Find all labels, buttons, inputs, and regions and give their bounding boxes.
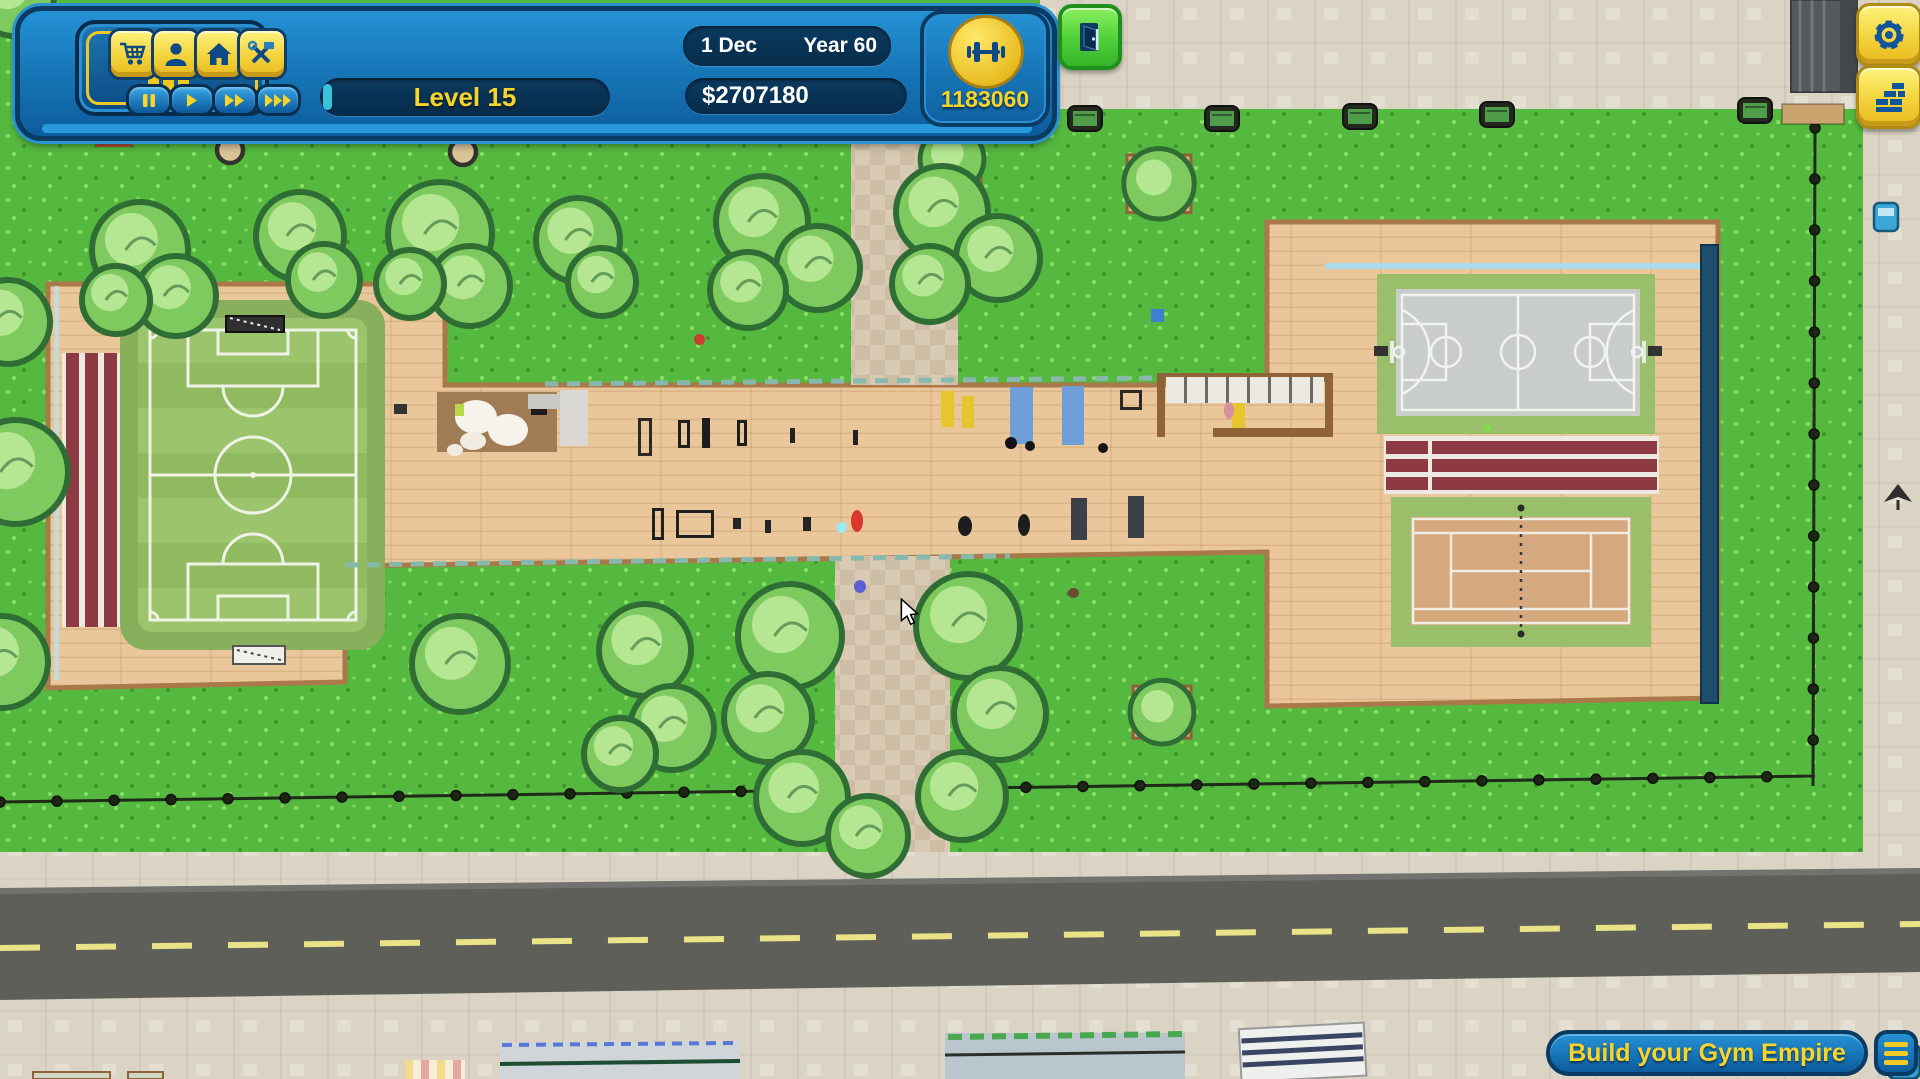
pause-button[interactable] (126, 84, 172, 116)
brick-wall-icon (1871, 81, 1907, 113)
tree (954, 668, 1046, 760)
running-track[interactable] (62, 353, 122, 627)
tennis-court[interactable] (1391, 497, 1651, 647)
stray-ball (1484, 425, 1491, 432)
tree (584, 718, 656, 790)
tree (828, 796, 908, 876)
tree (724, 674, 812, 762)
tree (916, 574, 1020, 678)
park-bench (1738, 98, 1772, 123)
gear-icon (1867, 13, 1911, 57)
shop-awning (405, 1060, 465, 1079)
date-year: Year 60 (803, 34, 877, 58)
star-icon (333, 22, 387, 74)
level-badge: Level 15 (320, 78, 610, 116)
date-display: 1 Dec Year 60 (683, 26, 891, 66)
park-bench (1343, 104, 1377, 129)
park-bench (1205, 106, 1239, 131)
gym-rating (333, 22, 608, 74)
round-planter (450, 139, 476, 165)
walls-button[interactable] (1856, 65, 1920, 129)
play-icon (186, 94, 198, 107)
build-button[interactable] (237, 28, 287, 80)
open-door-icon (1077, 21, 1103, 53)
tree (918, 752, 1006, 840)
home-icon (204, 40, 234, 68)
tree (412, 616, 508, 712)
boundary-wall (1701, 245, 1718, 703)
shop-roof-2 (945, 1033, 1185, 1079)
star-icon (549, 22, 603, 74)
tree (599, 604, 691, 696)
pause-icon (142, 94, 156, 107)
game-screen: Level 15 1 Dec Year 60 $2707180 1183060 … (0, 0, 1920, 1079)
fast-forward-button[interactable] (212, 84, 258, 116)
footer-title: Build your Gym Empire (1568, 1039, 1846, 1068)
soccer-field[interactable] (120, 300, 385, 664)
tree (568, 248, 636, 316)
courtyard-edge-line-top (1325, 263, 1705, 269)
person-icon (161, 40, 191, 68)
fastest-forward-icon (265, 94, 291, 107)
park-bench (1480, 102, 1514, 127)
shopping-cart-icon (118, 40, 148, 68)
basketball-court[interactable] (1374, 274, 1662, 434)
shop-roof-3 (1239, 1023, 1367, 1079)
star-icon (441, 22, 495, 74)
hamburger-menu-icon (1884, 1042, 1908, 1047)
hammer-wrench-icon (247, 40, 277, 68)
exit-button[interactable] (1058, 4, 1122, 70)
park-bench (1068, 106, 1102, 131)
star-icon (495, 22, 549, 74)
money-display: $2707180 (685, 78, 907, 114)
level-label: Level 15 (414, 82, 517, 113)
star-icon (387, 22, 441, 74)
garden-wall (1782, 104, 1844, 124)
tree (710, 252, 786, 328)
date-day: 1 Dec (701, 34, 757, 58)
bleachers[interactable] (1384, 436, 1659, 494)
money-value: $2707180 (702, 82, 809, 110)
tree (376, 250, 444, 318)
game-world[interactable] (0, 0, 1920, 1079)
settings-button[interactable] (1856, 3, 1920, 67)
menu-button[interactable] (1874, 1030, 1918, 1076)
footer-banner[interactable]: Build your Gym Empire (1546, 1030, 1868, 1076)
street-building (1791, 0, 1857, 92)
tree (776, 226, 860, 310)
fast-forward-icon (225, 94, 245, 107)
mouse-cursor (898, 598, 922, 626)
tree (892, 246, 968, 322)
tree (82, 266, 150, 334)
shop-roof-1 (500, 1042, 740, 1079)
play-button[interactable] (169, 84, 215, 116)
tree (738, 584, 842, 688)
tree (288, 244, 360, 316)
gym-points-value: 1183060 (918, 86, 1052, 116)
gym-points-badge (948, 15, 1024, 89)
planter-tree (1124, 149, 1194, 219)
goal-north (226, 316, 284, 332)
top-plaza (1040, 0, 1920, 114)
fastest-forward-button[interactable] (255, 84, 301, 116)
parked-cart (1874, 203, 1898, 231)
dumbbell-icon (965, 37, 1007, 67)
planter-tree (1130, 680, 1194, 744)
right-sidewalk (1855, 0, 1920, 905)
